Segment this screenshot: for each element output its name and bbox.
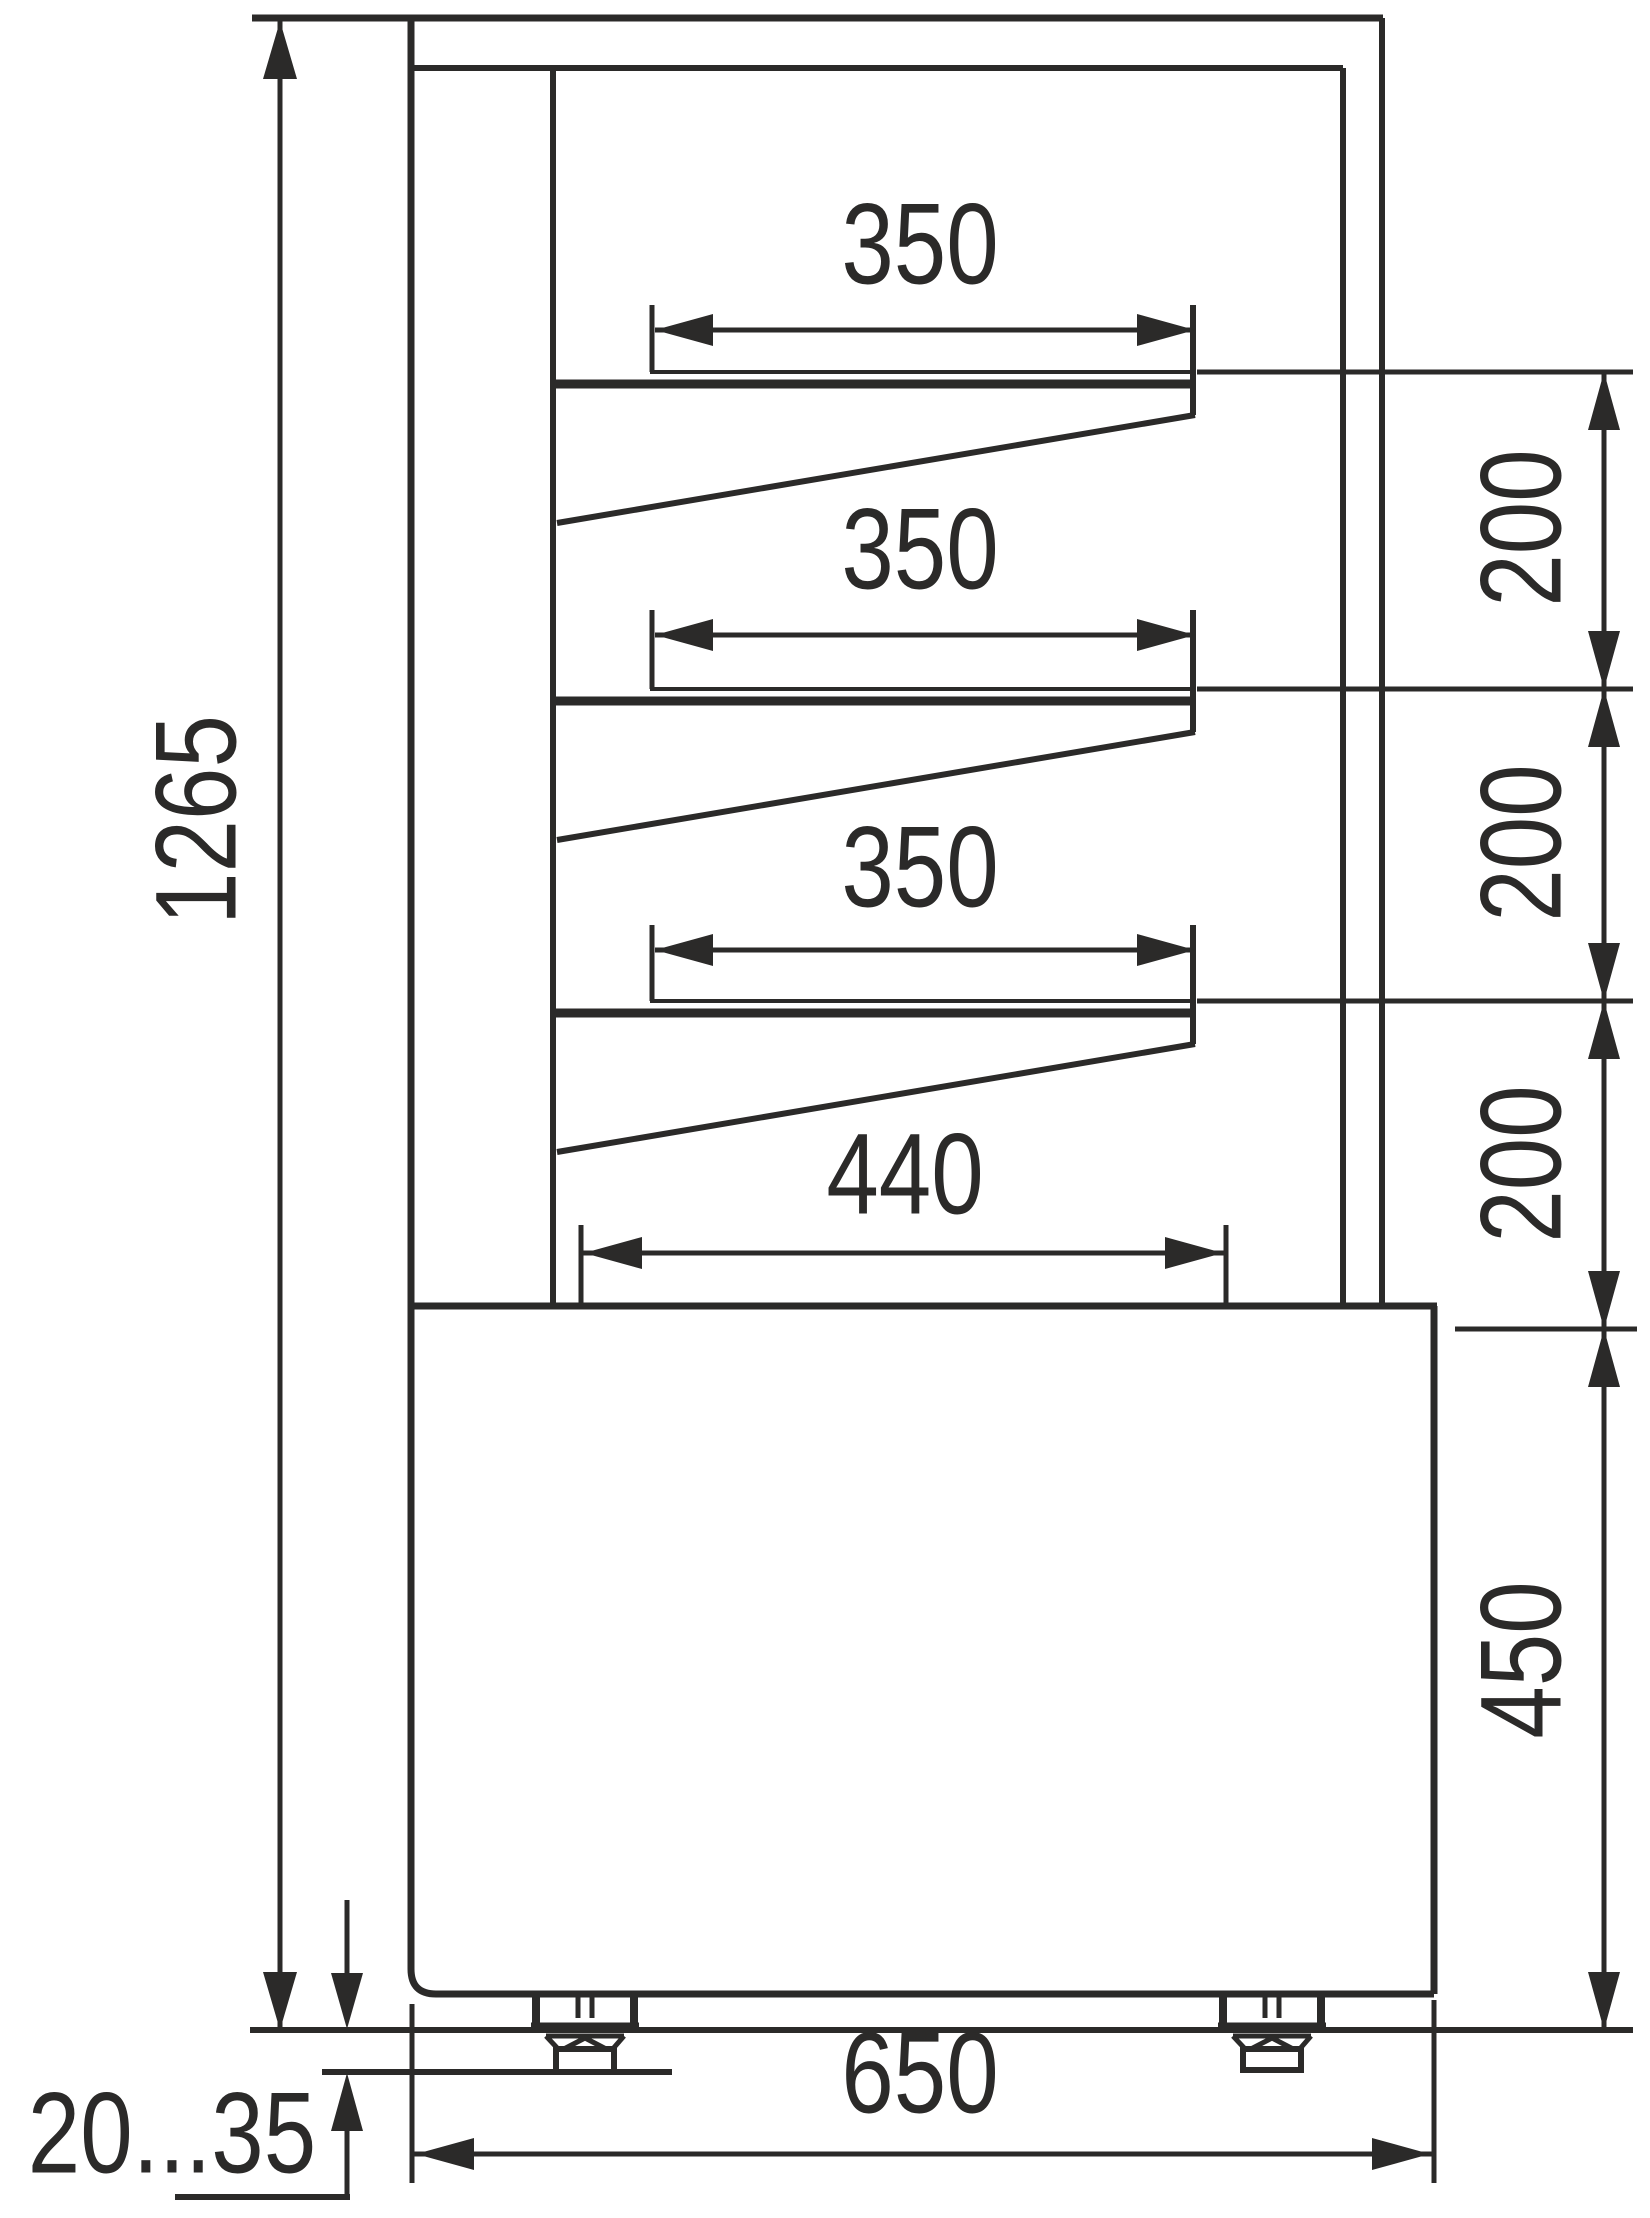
dimension-overall-height [263,21,297,2030]
dim-label-shelf-depth-top: 350 [841,188,998,303]
dimension-drawing-canvas: 1265 350 350 350 440 200 200 200 450 650… [0,0,1650,2218]
cabinet-outline [252,15,1437,1994]
dim-label-shelf-depth-middle: 350 [841,493,998,608]
dim-label-leg-adjustment: 20...35 [28,2077,316,2192]
dim-label-spacing-top: 200 [1465,449,1580,606]
dimension-shelf-depth-lower [652,925,1195,1001]
dim-label-overall-height: 1265 [140,715,255,925]
dimension-shelf-depth-top [652,305,1195,372]
dim-label-deck-depth: 440 [826,1118,983,1233]
dim-label-base-height: 450 [1465,1581,1580,1738]
cabinet-linework [0,0,1650,2218]
dim-label-spacing-lower: 200 [1465,1085,1580,1242]
dimension-shelf-depth-middle [652,610,1195,689]
dim-label-shelf-depth-lower: 350 [841,811,998,926]
dim-label-spacing-middle: 200 [1465,764,1580,921]
dim-label-overall-depth: 650 [841,2017,998,2132]
